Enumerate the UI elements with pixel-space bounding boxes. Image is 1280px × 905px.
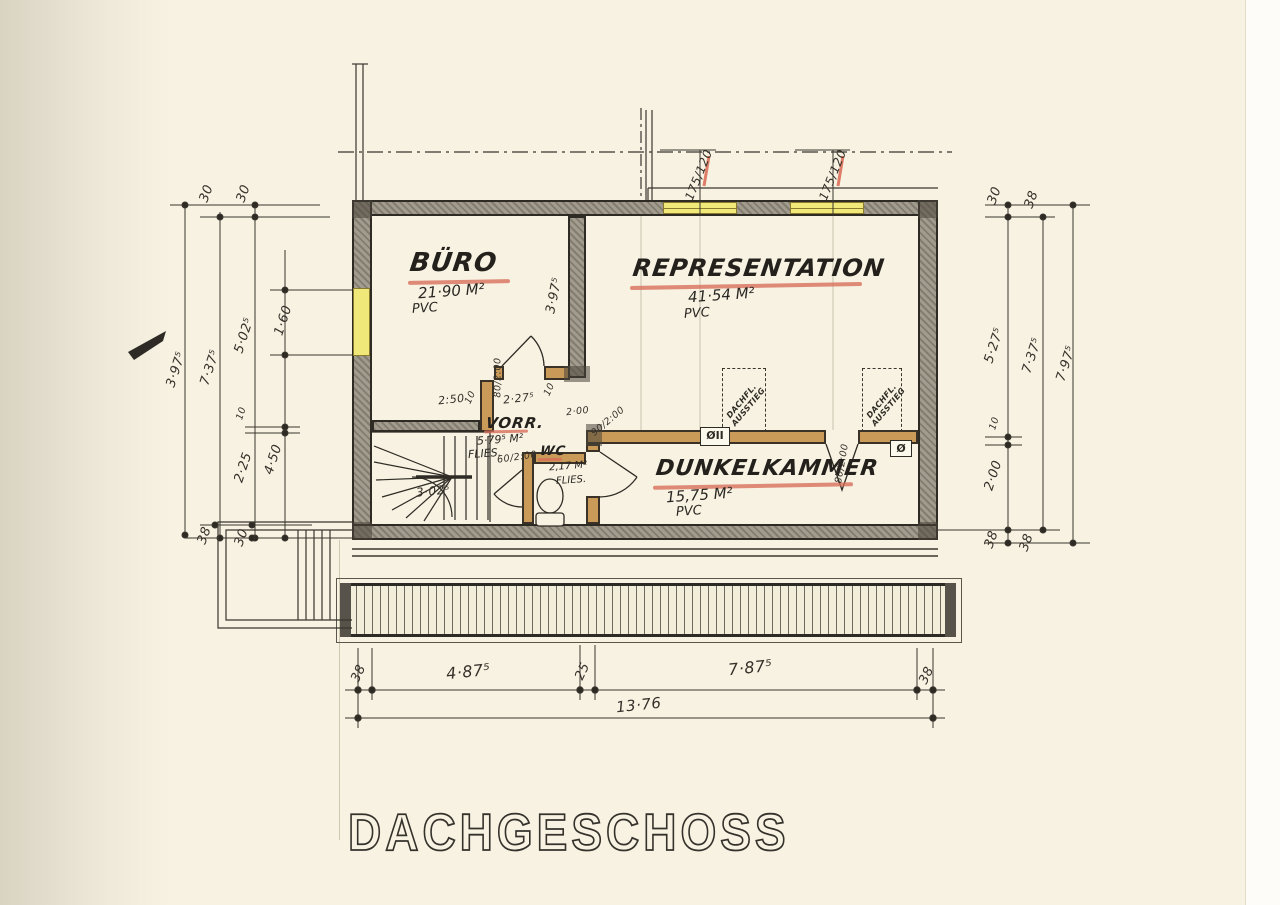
dim-interior-a: 2:50 <box>437 392 465 408</box>
room-name-buero: BÜRO <box>408 248 499 278</box>
paper-fold-mark <box>128 331 166 360</box>
room-floor-buero: PVC <box>412 300 439 317</box>
door-dim-buero: 80/2:00 <box>493 357 504 397</box>
dim-chain-left <box>170 202 352 541</box>
room-floor-dunkelkammer: PVC <box>676 503 703 520</box>
staircase <box>372 432 490 522</box>
drawing-title: DACHGESCHOSS <box>348 802 790 862</box>
ink-linework <box>0 0 1280 905</box>
room-floor-representation: PVC <box>684 305 711 322</box>
room-name-representation: REPRESENTATION <box>631 254 887 282</box>
room-floor-wc: FLIES. <box>556 474 587 487</box>
ridge-lines <box>338 64 952 200</box>
room-name-wc: WC <box>539 444 567 459</box>
floorplan-scan: DACHFL. AUSSTIEG DACHFL. AUSSTIEG ØII Ø <box>0 0 1280 905</box>
eave-lines <box>352 549 938 556</box>
dim-chain-bottom <box>345 645 945 728</box>
